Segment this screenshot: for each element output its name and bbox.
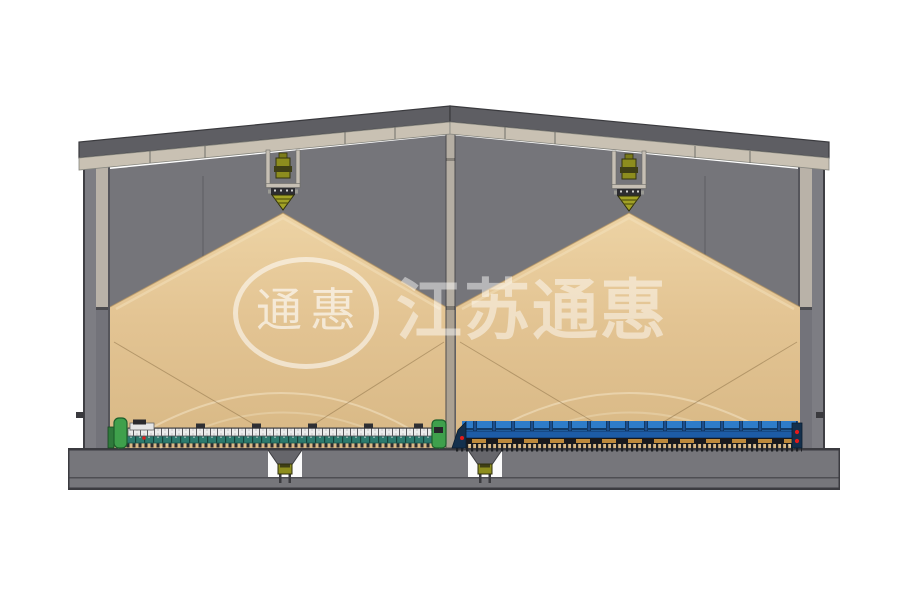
wall-bracket-left xyxy=(76,412,84,418)
conveyor-end-right xyxy=(792,423,802,448)
indicator-red-dot xyxy=(795,439,799,443)
right-wall xyxy=(798,145,825,448)
foundation-slab xyxy=(68,448,840,490)
wall-bracket-right xyxy=(816,412,824,418)
indicator-red-dot xyxy=(795,430,799,434)
indicator-red-dot xyxy=(142,436,146,440)
warehouse-cross-section-illustration: 通惠 江苏通惠 xyxy=(0,0,900,600)
left-wall xyxy=(76,145,110,448)
drag-conveyor-right xyxy=(452,421,802,452)
conveyor-end-tower-left xyxy=(114,418,127,448)
indicator-red-dot xyxy=(460,436,464,440)
center-column xyxy=(446,132,455,448)
warehouse-drawing xyxy=(0,0,900,600)
conveyor-end-tower-right xyxy=(432,420,446,448)
